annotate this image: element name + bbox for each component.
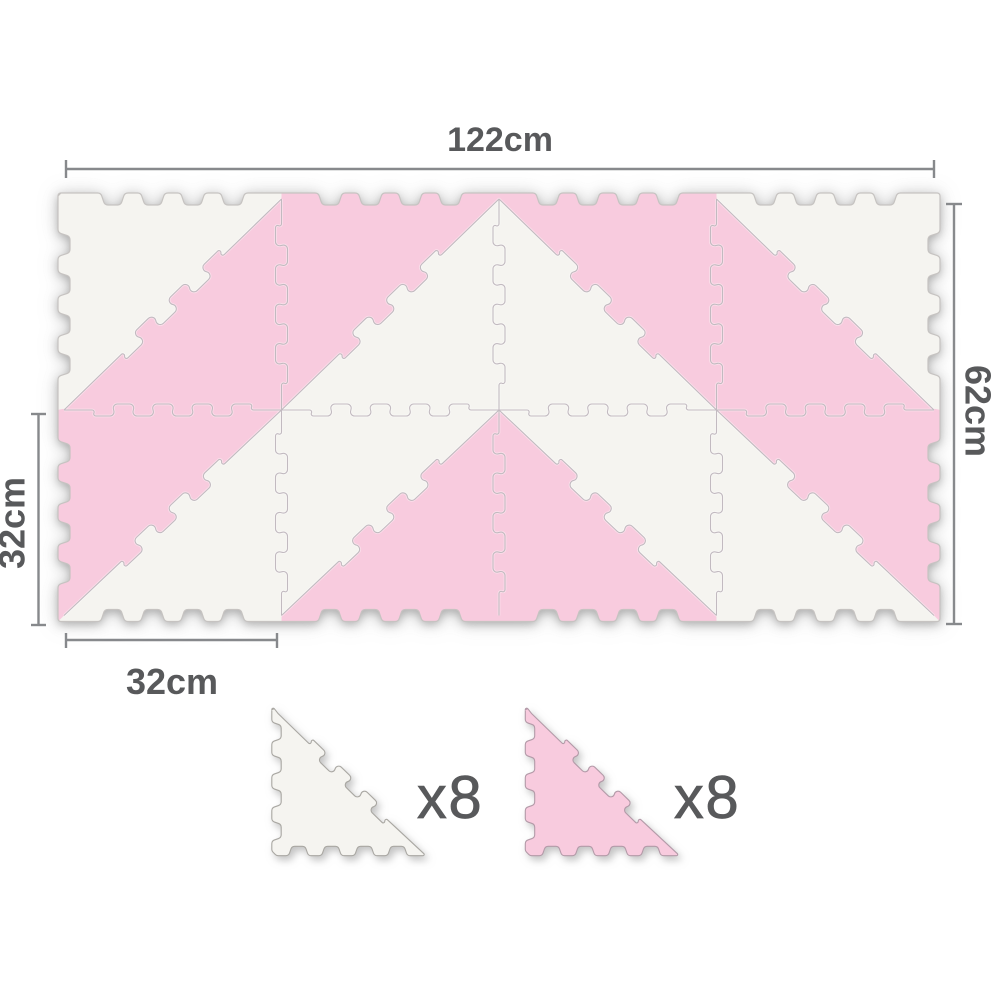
- svg-text:32cm: 32cm: [0, 477, 33, 569]
- svg-text:x8: x8: [674, 764, 740, 831]
- svg-text:x8: x8: [417, 764, 483, 831]
- svg-text:62cm: 62cm: [957, 365, 998, 457]
- svg-text:122cm: 122cm: [447, 121, 553, 159]
- svg-text:32cm: 32cm: [126, 661, 218, 702]
